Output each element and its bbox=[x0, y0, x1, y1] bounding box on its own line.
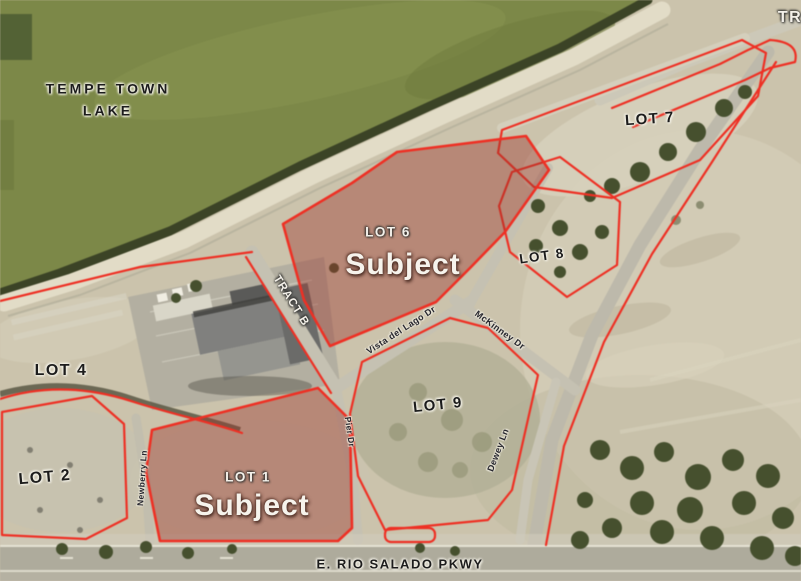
lake-dark-patch bbox=[0, 14, 32, 60]
lake-name-line1: TEMPE TOWN bbox=[46, 78, 171, 100]
street-label-rio-salado: E. RIO SALADO PKWY bbox=[316, 557, 483, 572]
lot4-label: LOT 4 bbox=[35, 362, 88, 380]
lot7-label: LOT 7 bbox=[624, 109, 675, 129]
lot1-subject-label: Subject bbox=[194, 489, 309, 523]
lake-name-label: TEMPE TOWN LAKE bbox=[46, 78, 171, 123]
lot1-label: LOT 1 bbox=[225, 470, 271, 485]
lot6-label: LOT 6 bbox=[365, 225, 411, 240]
tract-edge-label: TR bbox=[778, 9, 801, 27]
lake-name-line2: LAKE bbox=[46, 100, 171, 122]
lot6-subject-label: Subject bbox=[345, 248, 460, 282]
aerial-parcel-map: TEMPE TOWN LAKE LOT 7 TR LOT 6 Subject L… bbox=[0, 0, 801, 581]
